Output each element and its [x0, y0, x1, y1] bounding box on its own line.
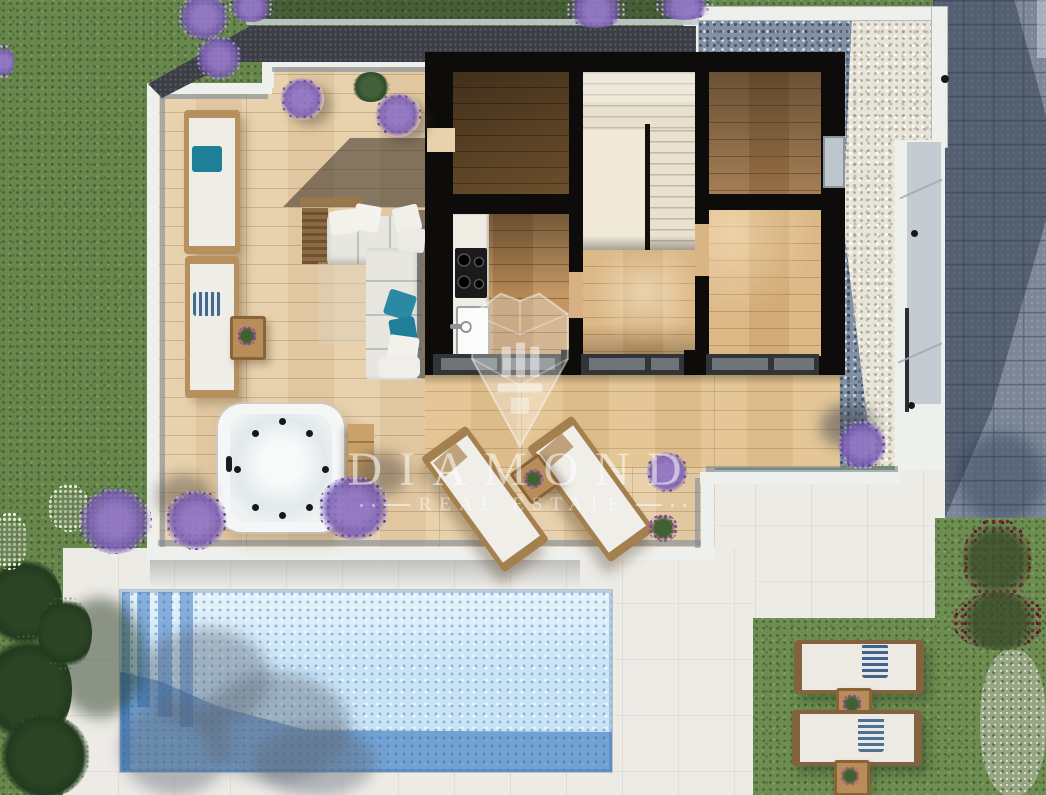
striped-pillow — [862, 644, 888, 678]
tree-shadow — [255, 726, 375, 795]
striped-pillow — [858, 716, 884, 752]
wall-stub — [684, 350, 706, 375]
stair-highlight — [583, 72, 695, 102]
pink-flower-bush — [648, 514, 678, 542]
sliding-door-pane — [441, 358, 497, 370]
sun-lounger — [794, 640, 924, 694]
lavender-bush — [318, 476, 390, 540]
jet-nozzle — [252, 430, 259, 437]
bench-slats — [302, 208, 328, 264]
walkway-post-dot — [911, 230, 918, 237]
jet-nozzle — [252, 504, 259, 511]
hot-tub-basin — [230, 414, 332, 522]
window-opening — [823, 136, 845, 188]
room-light — [709, 210, 821, 356]
garden-bush — [0, 714, 90, 795]
hallway-light — [583, 250, 695, 356]
control-panel — [226, 456, 232, 472]
sofa-armrest — [378, 356, 420, 378]
terrace-door — [427, 128, 455, 152]
sofa-pillow — [352, 203, 382, 233]
floor-plan-render: DIAMOND REAL ESTATE — [0, 0, 1046, 795]
roof-curb-line — [246, 19, 698, 25]
balustrade-glass-step-v — [695, 478, 700, 548]
sliding-door-pane — [651, 358, 679, 370]
terrace-side-table — [230, 316, 266, 360]
sliding-door-pane — [712, 358, 768, 370]
sliding-door-pane — [589, 358, 645, 370]
jet-nozzle — [234, 466, 241, 473]
lavender-bush — [165, 490, 227, 550]
lavender-bush — [178, 0, 230, 40]
sun-lounger — [792, 710, 922, 766]
branch-shadow — [958, 433, 1046, 523]
headrest-flap — [433, 443, 467, 476]
door-opening — [695, 224, 709, 276]
lavender-bush — [646, 452, 688, 492]
stair-divider-wall — [645, 124, 650, 250]
lavender-bush — [375, 93, 421, 137]
red-flower-bush — [952, 592, 1046, 650]
sliding-door-pane — [774, 358, 814, 370]
jet-nozzle — [306, 504, 313, 511]
table-edge — [300, 197, 362, 206]
balustrade-glass-top-right — [272, 67, 430, 72]
garden-bush — [38, 596, 92, 670]
lavender-bush — [196, 36, 242, 80]
flower-pot — [520, 465, 548, 493]
jet-nozzle — [279, 418, 286, 425]
door-opening — [569, 272, 583, 318]
lavender-bush — [0, 44, 14, 80]
sofa-pillow — [398, 227, 426, 254]
tree-shadow — [120, 700, 230, 795]
jet-nozzle — [306, 430, 313, 437]
teal-pillow — [192, 146, 222, 172]
sliding-door-pane — [503, 358, 555, 370]
lavender-bush — [838, 420, 886, 470]
jet-nozzle — [279, 512, 286, 519]
faucet-head — [460, 321, 472, 333]
red-flower-bush — [962, 518, 1032, 602]
sage-bush — [980, 650, 1046, 795]
balustrade-glass-top-left — [160, 94, 268, 99]
lavender-bush — [78, 488, 152, 554]
flower-pot — [840, 766, 860, 786]
balustrade-bottom — [147, 547, 715, 560]
gravel-frame-top — [683, 6, 947, 21]
potted-plant — [237, 326, 257, 346]
room-shading — [709, 72, 821, 194]
driveway-sunlit-strip — [1037, 0, 1046, 58]
jet-nozzle — [322, 466, 329, 473]
cooktop — [455, 248, 487, 298]
walkway-post-dot — [908, 402, 915, 409]
balustrade-step-v — [701, 474, 714, 554]
striped-pillow — [193, 292, 221, 316]
stair-landing — [583, 130, 647, 250]
lavender-bush — [280, 78, 324, 120]
sun-lounger — [184, 110, 240, 254]
wall-stub — [561, 350, 581, 375]
room-shading — [453, 72, 569, 194]
driveway-post-dot — [941, 75, 949, 83]
garden-side-table — [834, 760, 870, 795]
stair-treads-lower — [647, 130, 695, 250]
balustrade-step-h — [700, 472, 900, 484]
